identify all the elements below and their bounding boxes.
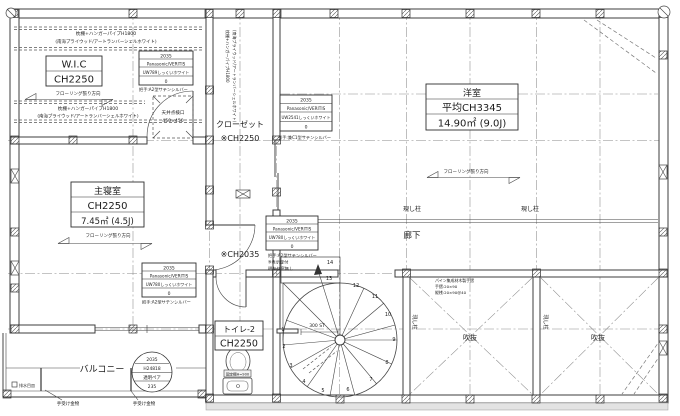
svg-text:把手:A2型サテンシルバー: 把手:A2型サテンシルバー [142, 299, 191, 306]
window-icon [11, 169, 19, 183]
room-label-closet: クローゼット [216, 119, 264, 129]
ceiling-access-hatch: 天井点検口 450×450 [153, 96, 193, 138]
wic-shelf-note2: (南海プライウッド/アートランバーシェルホワイト) [37, 113, 138, 120]
stair-step-numbers: 1 2 3 4 5 6 7 8 9 10 11 12 13 14 [281, 260, 395, 394]
wic-shelf-note1: 枕棚+ハンガーパイプH1800 [58, 105, 118, 112]
svg-text:Panasonic/VERITIS: Panasonic/VERITIS [147, 62, 186, 67]
svg-text:2035: 2035 [286, 219, 298, 225]
closet-shelf-note1: 枕棚+ハンガーパイプH1800 [225, 30, 231, 83]
western-label-box: 洋室 平均CH3345 14.90㎡ (9.0J) [426, 84, 518, 130]
svg-text:フローリング張り方向: フローリング張り方向 [86, 232, 131, 239]
room-label-wic: W.I.C [61, 60, 86, 71]
svg-text:0: 0 [305, 125, 308, 131]
room-ch-wic: CH2250 [54, 75, 94, 86]
window-icon [11, 261, 19, 275]
svg-text:7: 7 [369, 377, 372, 383]
bracket-label: 手受け金物 [133, 400, 156, 407]
room-label-hall: 廊下 [403, 230, 421, 241]
ceiling-hatch-size: 450×450 [162, 118, 183, 124]
ceiling-hatch-label: 天井点検口 [162, 109, 185, 116]
room-ch-closet: ※CH2250 [221, 134, 260, 143]
void-label: 吹抜 [463, 333, 477, 342]
svg-text:2035: 2035 [163, 266, 175, 272]
bracket-label: 手受け金物 [57, 400, 80, 407]
svg-text:6: 6 [346, 387, 349, 393]
svg-text:2: 2 [282, 344, 285, 350]
svg-text:Panasonic/VERITIS: Panasonic/VERITIS [150, 274, 189, 279]
closet-shelf-note2: (南海プライウッド/アートランバーシェルホワイト) [232, 30, 238, 123]
svg-text:引手:兼C1型サテンシルバー: 引手:兼C1型サテンシルバー [278, 134, 331, 141]
wic-shelf-note1: 枕棚+ハンガーパイプH1800 [76, 30, 136, 37]
svg-text:235: 235 [148, 384, 157, 390]
handrail-note1: パイン集成材木製手摺 [435, 278, 474, 283]
toilet-fixture: 固定棚H=900 [223, 347, 252, 394]
svg-text:14: 14 [327, 260, 333, 266]
svg-text:11: 11 [372, 294, 378, 300]
svg-text:2035: 2035 [146, 357, 157, 363]
svg-text:把手:A2型サテンシルバー: 把手:A2型サテンシルバー [139, 86, 188, 93]
svg-text:8: 8 [385, 360, 388, 366]
exposed-column-label: 現し柱 [521, 205, 539, 213]
exposed-column-label: 現し柱 [403, 205, 421, 213]
stair-dim-label: 300 ST [309, 323, 325, 329]
flooring-master: フローリング張り方向 [58, 232, 152, 250]
spec-closet-door: 2035 Panasonic/VERITIS UW2541しっくいホワイト 0 … [278, 95, 332, 141]
svg-text:4: 4 [302, 379, 305, 385]
spec-wic-door: 2035 Panasonic/VERITIS UW789しっくいホワイト 0 把… [139, 51, 193, 93]
drain-symbol: 排水目皿 [12, 382, 35, 388]
svg-text:9: 9 [392, 337, 395, 343]
window-icon [236, 190, 250, 198]
exposed-column-label: 現し柱 [542, 314, 549, 329]
exposed-column-label: 現し柱 [411, 314, 418, 329]
svg-text:フローリング張り方向: フローリング張り方向 [444, 168, 489, 175]
svg-text:1: 1 [281, 327, 284, 333]
room-area-western: 14.90㎡ (9.0J) [438, 118, 507, 130]
toilet-label-box: トイレ-2 CH2250 [215, 321, 263, 350]
svg-text:UW780しっくいホワイト: UW780しっくいホワイト [146, 282, 193, 287]
flooring-western: フローリング張り方向 [427, 168, 520, 184]
svg-text:UW780しっくいホワイト: UW780しっくいホワイト [269, 235, 316, 240]
svg-text:H24818: H24818 [143, 366, 160, 372]
spec-bedroom-door: 2035 Panasonic/VERITIS UW780しっくいホワイト 0 把… [142, 263, 196, 306]
svg-text:5: 5 [321, 388, 324, 394]
svg-text:UW789しっくいホワイト: UW789しっくいホワイト [143, 70, 190, 75]
svg-text:0: 0 [168, 291, 171, 297]
svg-text:フローリング張り方向: フローリング張り方向 [56, 90, 101, 97]
handrail-note3: 縦桟:20×90@40 [435, 290, 467, 295]
window-icon [659, 341, 667, 355]
drain-label: 排水目皿 [19, 382, 35, 388]
balcony-window-spec: 2035 H24818 透明ペア 235 [132, 352, 172, 392]
svg-text:※表示錠付: ※表示錠付 [268, 259, 288, 266]
svg-text:0: 0 [165, 79, 168, 85]
svg-text:Panasonic/VERITIS: Panasonic/VERITIS [273, 227, 312, 232]
hall-ch-label: ※CH2035 [221, 250, 260, 259]
spiral-stair: 300 ST 1 2 3 4 5 6 7 8 9 10 11 12 13 14 [281, 257, 397, 397]
room-ch-western: 平均CH3345 [442, 102, 502, 114]
room-label-balcony: バルコニー [80, 364, 125, 375]
spec-hall-door: 2035 Panasonic/VERITIS UW780しっくいホワイト 0 把… [266, 216, 318, 272]
svg-text:0: 0 [291, 244, 294, 250]
master-label-box: 主寝室 CH2250 7.45㎡ (4.5J) [71, 182, 144, 227]
svg-text:透明ペア: 透明ペア [143, 374, 161, 381]
floor-plan-page: 天井点検口 450×450 300 ST 1 2 3 [0, 0, 680, 416]
room-area-master: 7.45㎡ (4.5J) [81, 217, 134, 227]
svg-text:2035: 2035 [160, 54, 172, 60]
window-icon [659, 165, 667, 179]
wic-label-box: W.I.C CH2250 [46, 56, 102, 86]
room-label-western: 洋室 [463, 87, 481, 99]
svg-text:2035: 2035 [300, 98, 312, 104]
wic-shelf-note2: (南海プライウッド/アートランバーシェルホワイト) [55, 38, 156, 45]
svg-text:Panasonic/VERITIS: Panasonic/VERITIS [287, 106, 326, 111]
svg-text:13: 13 [326, 276, 332, 282]
room-label-master: 主寝室 [94, 185, 121, 197]
balcony-area: 排水目皿 手受け金物 手受け金物 バルコニー 2035 H24818 透明ペア … [3, 333, 206, 407]
room-label-toilet: トイレ-2 [223, 325, 255, 334]
svg-text:10: 10 [385, 312, 391, 318]
room-ch-master: CH2250 [88, 201, 128, 212]
svg-text:把手:A2型サテンシルバー: 把手:A2型サテンシルバー [268, 252, 317, 259]
void-label: 吹抜 [591, 333, 605, 342]
bedroom-door-arc [210, 225, 255, 270]
handrail-note2: 手摺:20×90 [435, 284, 458, 289]
svg-text:3: 3 [289, 363, 292, 369]
svg-text:明かり窓無し: 明かり窓無し [268, 265, 293, 272]
toilet-door-arc [216, 277, 246, 307]
svg-text:12: 12 [353, 283, 359, 289]
floor-plan-drawing: 天井点検口 450×450 300 ST 1 2 3 [0, 0, 680, 416]
svg-text:UW2541しっくいホワイト: UW2541しっくいホワイト [281, 115, 330, 120]
room-ch-toilet: CH2250 [220, 339, 258, 350]
fixed-shelf-label: 固定棚H=900 [226, 371, 250, 376]
